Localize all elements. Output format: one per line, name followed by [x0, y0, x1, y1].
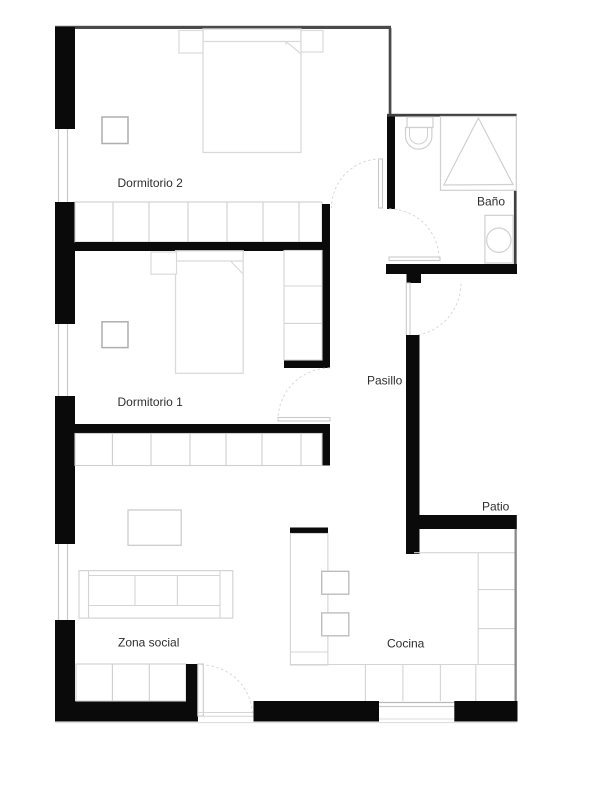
svg-text:Patio: Patio	[482, 500, 510, 514]
svg-text:Dormitorio 2: Dormitorio 2	[118, 176, 184, 190]
svg-text:Dormitorio 1: Dormitorio 1	[118, 395, 184, 409]
svg-text:Baño: Baño	[477, 195, 505, 209]
svg-text:Cocina: Cocina	[387, 637, 425, 651]
svg-text:Pasillo: Pasillo	[367, 374, 403, 388]
svg-text:Zona social: Zona social	[118, 636, 179, 650]
